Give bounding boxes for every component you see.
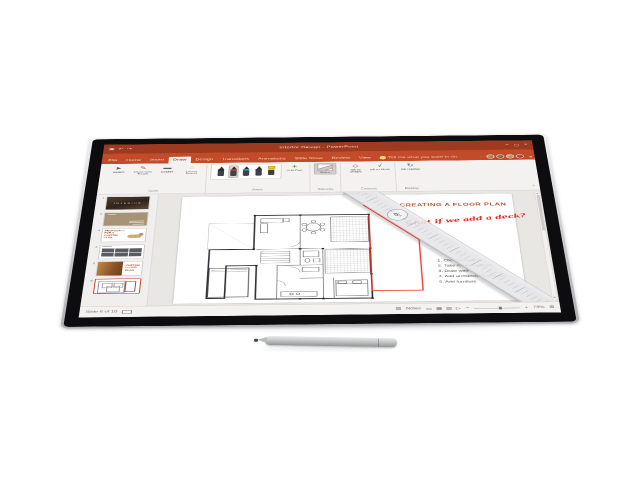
zoom-slider[interactable]	[474, 307, 520, 308]
lasso-icon: ◌	[189, 165, 194, 169]
notes-toggle[interactable]: Notes	[406, 307, 421, 311]
slide-thumbnail-2[interactable]	[102, 212, 148, 226]
slide-sorter-icon[interactable]: ▦	[436, 306, 443, 311]
tell-me-label: Tell me what you want to do	[388, 155, 457, 159]
avatar-1[interactable]	[486, 154, 495, 158]
svg-text:5. Add furniture: 5. Add furniture	[439, 279, 477, 283]
notes-icon: ▤	[396, 307, 402, 311]
teal-pen[interactable]	[241, 165, 251, 177]
slide-thumbnail-5[interactable]: CUSTOM FLOOR PLAN	[95, 261, 143, 276]
pen-shadow	[262, 347, 394, 350]
scrollbar-thumb[interactable]	[536, 195, 545, 230]
ribbon-group-tools: ► Select ✎ Draw with Touch ▬ Eraser	[101, 164, 207, 194]
avatar-4[interactable]	[516, 154, 525, 158]
thumbnail-row-2: 2	[92, 212, 153, 226]
undo-icon[interactable]: ↶	[118, 147, 124, 150]
lightbulb-icon	[380, 156, 386, 159]
pen-tip-cone	[257, 337, 267, 343]
slideshow-icon[interactable]: ▷	[456, 306, 461, 311]
slide-editor-area[interactable]: CREATING A FLOOR PLAN what if we add a d…	[147, 190, 559, 306]
ink-to-math-icon: √	[377, 164, 382, 168]
add-pen-button[interactable]: + Add Pen	[283, 163, 305, 172]
zoom-out-icon[interactable]: −	[466, 306, 470, 309]
group-label-convert: Convert	[361, 186, 377, 191]
ink-to-shape-button[interactable]: ◇ Ink to Shape	[344, 163, 367, 175]
slide-thumbnail-4[interactable]	[98, 244, 145, 259]
ink-replay-button[interactable]: ↻ Ink Replay	[399, 162, 422, 171]
thumbnail-row-3: 3 PROPOSALS FOR A CUSTOM PLAN	[90, 228, 152, 243]
floor-plan-drawing	[204, 214, 374, 301]
fit-to-window-icon[interactable]: ⊞	[549, 306, 554, 309]
yellow-highlighter[interactable]	[266, 165, 276, 177]
mini-floor-plan	[97, 280, 126, 293]
zoom-in-icon[interactable]: +	[524, 306, 528, 309]
eraser-button[interactable]: ▬ Eraser	[156, 165, 179, 174]
surface-pen	[257, 336, 397, 347]
zoom-slider-thumb[interactable]	[499, 306, 502, 309]
slide-number-indicator[interactable]: Slide 6 of 10	[85, 310, 117, 314]
select-icon: ►	[115, 166, 124, 170]
ribbon-group-pens: + Add Pen Pens	[205, 163, 310, 193]
view-switcher: ▭ ▦ ▥ ▷	[426, 306, 462, 311]
slide-thumbnail-6-selected[interactable]	[93, 278, 142, 294]
ribbon-group-replay: ↻ Ink Replay Replay	[394, 162, 427, 191]
collaborator-avatars	[484, 154, 524, 159]
blue-pen[interactable]	[253, 165, 263, 177]
pen-tip	[254, 339, 258, 342]
replay-icon: ↻	[407, 163, 414, 167]
ribbon-group-stencils: Ruler Stencils	[309, 163, 340, 192]
normal-view-icon[interactable]: ▭	[426, 306, 432, 311]
group-label-replay: Replay	[405, 186, 420, 191]
lasso-select-button[interactable]: ◌ Lasso Select	[180, 164, 203, 176]
red-pen-selected[interactable]	[228, 165, 239, 177]
window-controls: – ▢ ×	[505, 143, 527, 146]
display-bezel: ▣ ↶ ↷ Interior Design - PowerPoint – ▢ ×…	[63, 135, 576, 327]
slide-graphics: CREATING A FLOOR PLAN what if we add a d…	[173, 193, 527, 303]
black-pen[interactable]	[216, 166, 227, 178]
slide-thumbnail-3[interactable]: PROPOSALS FOR A CUSTOM PLAN	[100, 228, 147, 242]
group-label-stencils: Stencils	[317, 187, 333, 192]
ruler-icon	[317, 164, 332, 171]
thumbnail-row-1: 1 INTERIOR	[95, 196, 155, 210]
eraser-icon: ▬	[163, 166, 171, 170]
collapse-ribbon-icon[interactable]: ^	[532, 185, 535, 188]
pen-gallery	[210, 164, 282, 180]
slide-title[interactable]: CREATING A FLOOR PLAN	[400, 202, 507, 208]
photo-grid	[101, 248, 142, 256]
minimize-icon[interactable]: –	[505, 143, 508, 146]
thumbnail-row-5: 5 CUSTOM FLOOR PLAN	[85, 261, 148, 276]
slide-thumbnail-1[interactable]: INTERIOR	[105, 196, 151, 210]
powerpoint-window: ▣ ↶ ↷ Interior Design - PowerPoint – ▢ ×…	[79, 140, 561, 317]
quick-access-toolbar: ▣ ↶ ↷	[109, 147, 133, 150]
ribbon-group-convert: ◇ Ink to Shape √ Ink to Math Convert	[340, 162, 396, 191]
ribbon: ► Select ✎ Draw with Touch ▬ Eraser	[97, 160, 540, 195]
pen-cap-seam	[378, 338, 379, 346]
wood-photo	[96, 262, 123, 276]
thumbnail-row-4: 4	[87, 244, 150, 259]
group-label-tools: Tools	[147, 189, 158, 194]
select-button[interactable]: ► Select	[107, 165, 131, 174]
ruler-button[interactable]: Ruler	[314, 163, 337, 175]
scroll-down-icon[interactable]: ▼	[552, 296, 557, 299]
group-label-pens: Pens	[252, 188, 263, 193]
save-icon[interactable]: ▣	[109, 148, 115, 151]
avatar-3[interactable]	[506, 154, 515, 158]
product-photo-stage: ▣ ↶ ↷ Interior Design - PowerPoint – ▢ ×…	[0, 0, 640, 480]
draw-with-touch-button[interactable]: ✎ Draw with Touch	[131, 165, 155, 177]
thumbnail-row-6: 6	[82, 278, 146, 294]
draw-icon: ✎	[140, 166, 147, 170]
close-icon[interactable]: ×	[524, 143, 528, 146]
avatar-2[interactable]	[496, 154, 505, 158]
reading-view-icon[interactable]: ▥	[446, 306, 453, 311]
vertical-scrollbar[interactable]: ▲ ▼	[534, 192, 558, 300]
redo-icon[interactable]: ↷	[127, 147, 133, 150]
surface-studio-display: ▣ ↶ ↷ Interior Design - PowerPoint – ▢ ×…	[60, 133, 580, 328]
current-slide-canvas[interactable]: CREATING A FLOOR PLAN what if we add a d…	[173, 193, 527, 303]
plus-icon: +	[292, 164, 297, 168]
display-settings-icon[interactable]	[122, 310, 132, 314]
ink-to-shape-icon: ◇	[352, 164, 358, 168]
slide-thumbnail-panel[interactable]: 1 INTERIOR 2	[80, 194, 159, 306]
ink-to-math-button[interactable]: √ Ink to Math	[368, 162, 391, 171]
maximize-icon[interactable]: ▢	[514, 143, 520, 146]
editor-body: 1 INTERIOR 2	[80, 190, 559, 306]
zoom-level[interactable]: 73%	[533, 306, 545, 310]
mini-red-ink	[124, 281, 136, 292]
